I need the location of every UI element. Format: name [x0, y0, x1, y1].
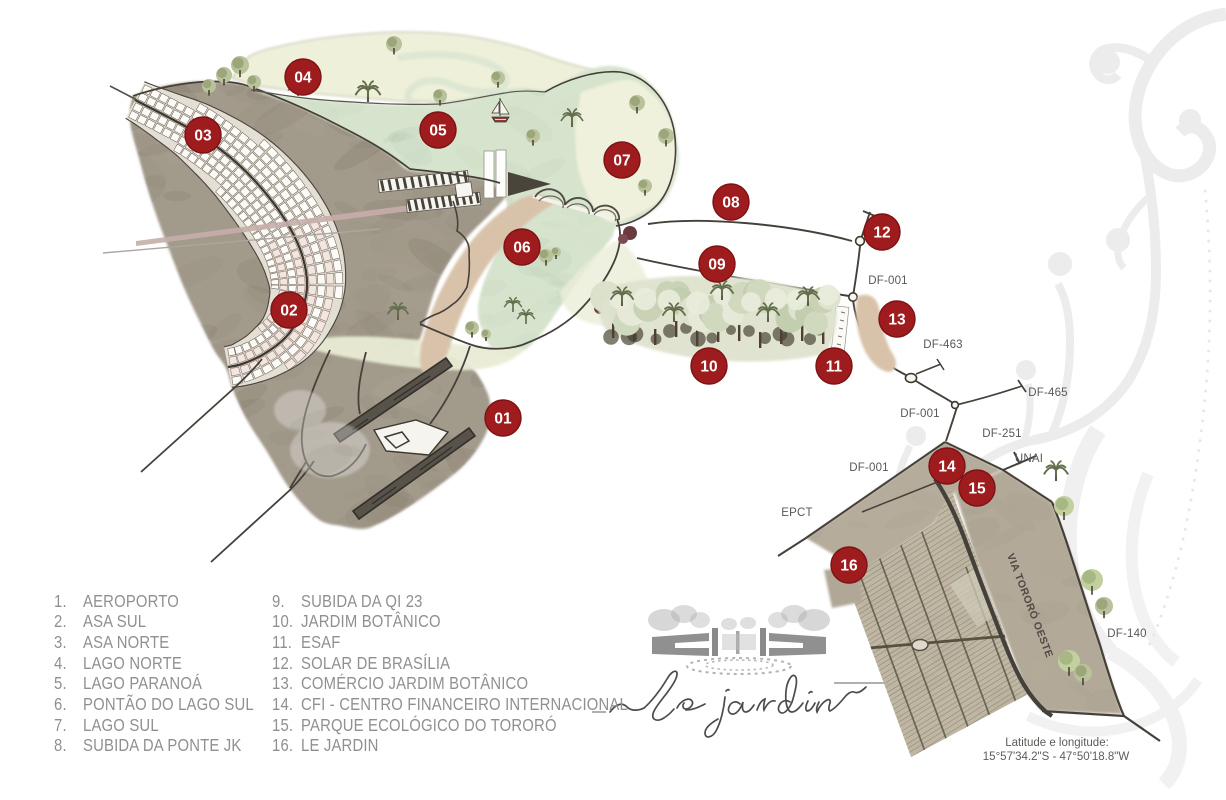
- svg-text:15: 15: [968, 481, 986, 498]
- svg-text:DF-251: DF-251: [982, 428, 1022, 440]
- svg-text:08: 08: [722, 195, 740, 212]
- svg-text:09: 09: [708, 257, 726, 274]
- svg-text:05: 05: [429, 123, 447, 140]
- svg-text:10: 10: [700, 359, 717, 376]
- svg-text:03: 03: [194, 128, 212, 145]
- svg-text:02: 02: [280, 303, 297, 320]
- svg-text:DF-001: DF-001: [868, 275, 908, 287]
- svg-text:04: 04: [294, 70, 312, 87]
- svg-text:UNAI: UNAI: [1015, 453, 1043, 465]
- svg-text:06: 06: [513, 240, 531, 257]
- svg-text:EPCT: EPCT: [781, 507, 812, 519]
- svg-text:15°57'34.2"S - 47°50'18.8"W: 15°57'34.2"S - 47°50'18.8"W: [983, 751, 1130, 763]
- svg-text:Latitude e longitude:: Latitude e longitude:: [1005, 737, 1109, 749]
- svg-text:01: 01: [494, 411, 512, 428]
- svg-text:DF-001: DF-001: [900, 408, 940, 420]
- svg-text:07: 07: [613, 153, 630, 170]
- svg-text:DF-140: DF-140: [1107, 628, 1147, 640]
- svg-text:DF-463: DF-463: [923, 339, 963, 351]
- svg-text:DF-465: DF-465: [1028, 387, 1068, 399]
- svg-text:14: 14: [938, 459, 956, 476]
- svg-text:11: 11: [826, 359, 843, 376]
- svg-text:12: 12: [873, 225, 890, 242]
- svg-text:16: 16: [840, 558, 858, 575]
- svg-text:13: 13: [888, 312, 906, 329]
- svg-text:DF-001: DF-001: [849, 462, 889, 474]
